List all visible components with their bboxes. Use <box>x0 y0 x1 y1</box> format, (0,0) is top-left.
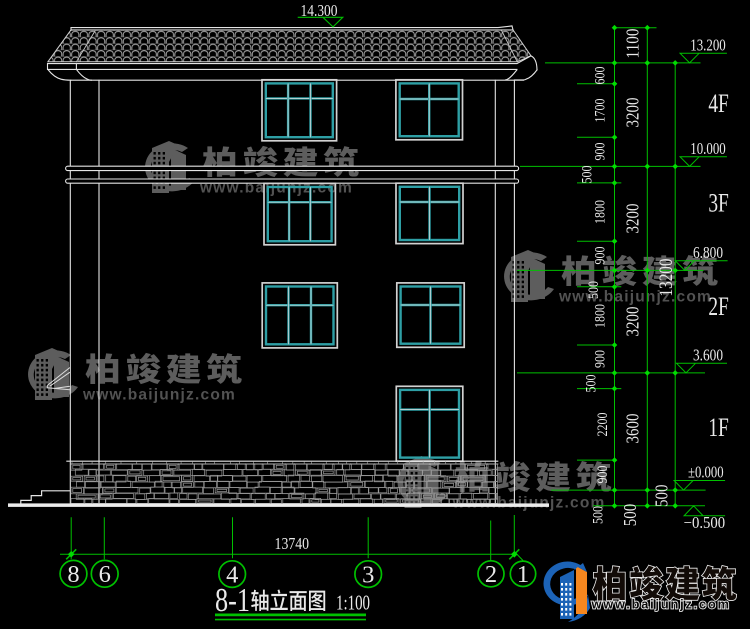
svg-text:2200: 2200 <box>595 413 611 437</box>
svg-text:−0.500: −0.500 <box>684 513 726 532</box>
svg-text:500: 500 <box>586 281 602 299</box>
svg-text:3: 3 <box>362 561 374 588</box>
svg-text:1100: 1100 <box>623 29 643 59</box>
svg-text:900: 900 <box>593 143 609 161</box>
svg-text:1800: 1800 <box>593 200 609 224</box>
svg-text:1800: 1800 <box>593 304 609 328</box>
svg-text:500: 500 <box>620 504 640 527</box>
svg-text:3200: 3200 <box>623 307 643 337</box>
svg-text:600: 600 <box>593 67 609 85</box>
svg-text:3.600: 3.600 <box>693 345 723 364</box>
svg-text:8-1: 8-1 <box>215 582 250 619</box>
svg-text:8: 8 <box>67 561 79 588</box>
svg-text:1700: 1700 <box>593 99 609 123</box>
svg-text:13.200: 13.200 <box>690 35 726 54</box>
svg-text:13200: 13200 <box>657 259 677 297</box>
svg-text:www.baijunjz.com: www.baijunjz.com <box>591 597 731 612</box>
svg-text:500: 500 <box>591 506 607 524</box>
svg-text:500: 500 <box>580 166 596 184</box>
svg-text:1: 1 <box>517 561 529 588</box>
svg-text:10.000: 10.000 <box>690 139 726 158</box>
svg-text:6.800: 6.800 <box>693 243 723 262</box>
svg-text:900: 900 <box>595 466 611 484</box>
svg-text:3F: 3F <box>708 188 729 217</box>
svg-text:3200: 3200 <box>623 98 643 128</box>
svg-text:13740: 13740 <box>275 534 310 553</box>
svg-text:500: 500 <box>652 485 672 508</box>
svg-text:2F: 2F <box>708 292 729 321</box>
svg-text:3200: 3200 <box>623 204 643 234</box>
svg-text:900: 900 <box>593 247 609 265</box>
svg-text:2: 2 <box>485 561 497 588</box>
svg-text:500: 500 <box>584 375 600 393</box>
svg-text:±0.000: ±0.000 <box>688 463 724 482</box>
svg-text:4F: 4F <box>708 89 729 118</box>
svg-text:3600: 3600 <box>623 414 643 444</box>
svg-text:1:100: 1:100 <box>336 591 370 615</box>
svg-text:6: 6 <box>99 561 111 588</box>
svg-text:900: 900 <box>593 350 609 368</box>
svg-text:1F: 1F <box>708 413 729 442</box>
svg-text:14.300: 14.300 <box>301 1 338 20</box>
